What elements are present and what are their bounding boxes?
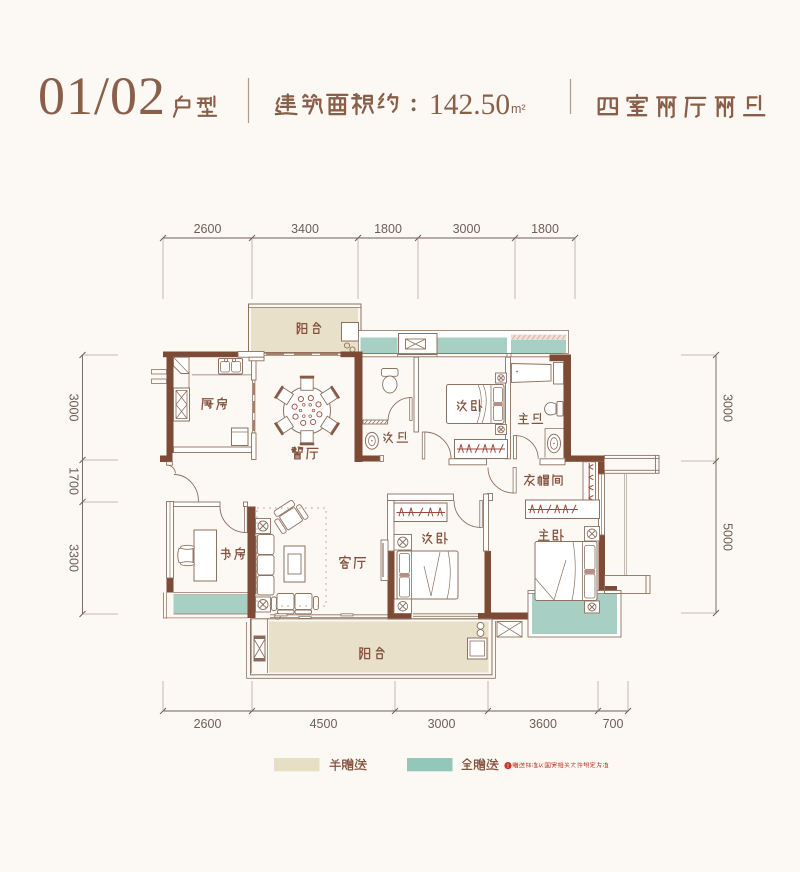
svg-text:4500: 4500 [310,717,338,731]
svg-text:142.50: 142.50 [429,89,510,121]
svg-text:2600: 2600 [194,717,222,731]
svg-text:3000: 3000 [721,394,735,422]
svg-text:5000: 5000 [721,523,735,551]
svg-text:700: 700 [603,717,624,731]
svg-text:3000: 3000 [453,222,481,236]
svg-text:3600: 3600 [529,717,557,731]
svg-text:1800: 1800 [531,222,559,236]
svg-text:m²: m² [511,102,526,116]
svg-text:3000: 3000 [67,394,81,422]
svg-text:3400: 3400 [291,222,319,236]
svg-text:3300: 3300 [67,544,81,572]
svg-text:01/02: 01/02 [38,66,166,126]
svg-text:3000: 3000 [428,717,456,731]
svg-text:2600: 2600 [194,222,222,236]
svg-text:1700: 1700 [67,467,81,495]
svg-text:1800: 1800 [374,222,402,236]
